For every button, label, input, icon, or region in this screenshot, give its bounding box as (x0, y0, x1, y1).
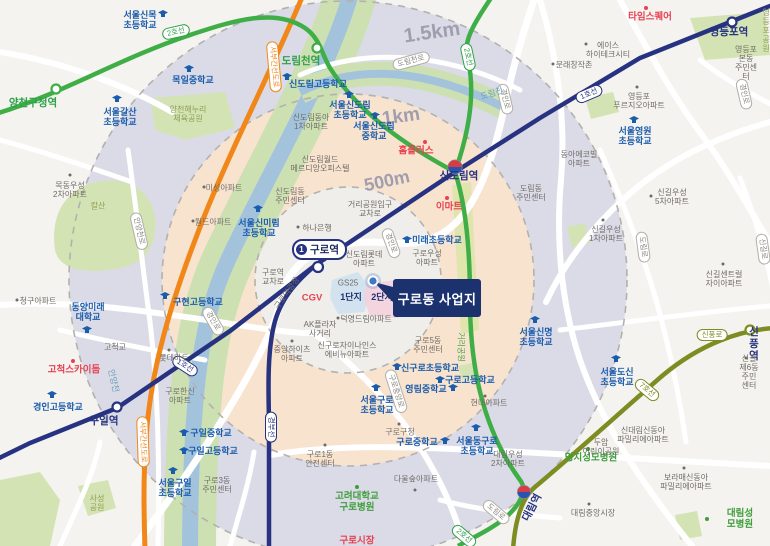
map-label: 신길제6동 주민센터 (739, 354, 760, 390)
gyeongbu-line-badge: 경부선 (265, 412, 277, 443)
map-label: 도림동 주민센터 (516, 184, 545, 202)
road-badge: 도림로 (480, 498, 511, 527)
marker-dot-icon (644, 6, 648, 10)
marker-dot-icon (203, 186, 206, 189)
map-label: 신도림동 주민센터 (275, 187, 304, 205)
station-label-yeongdeungpo: 영등포역 (710, 27, 749, 39)
marker-dot-icon (552, 63, 555, 66)
school-cap-icon (440, 437, 450, 445)
radius-label-1km: 1km (381, 104, 422, 131)
marker-dot-icon (586, 447, 590, 451)
marker-dot-icon (683, 467, 686, 470)
map-label: 경인고등학교 (33, 402, 83, 412)
map-label: 두암 어린이공원 (583, 438, 620, 456)
station-label-sindorim: 신도림역 (440, 171, 479, 183)
map-label: 롯데마트 (159, 353, 188, 362)
school-cap-icon (179, 447, 189, 455)
road-badge: 경인로 (496, 83, 515, 116)
guro-station-badge: 1 구로역 (292, 239, 347, 260)
map-label: 중앙하이츠 아파트 (274, 345, 311, 363)
map-label: 동양미래 대학교 (71, 302, 104, 323)
marker-dot-icon (16, 299, 19, 302)
station-label-guil: 구일역 (90, 416, 119, 428)
marker-dot-icon (71, 359, 75, 363)
map-label: 구로역광장 (273, 275, 302, 310)
marker-dot-icon (355, 485, 359, 489)
map-label: 대림성모병원 (725, 509, 755, 531)
map-label: 고척스카이돔 (48, 366, 100, 377)
marker-dot-icon (192, 220, 195, 223)
map-label: 구로1동 안전센터 (305, 450, 334, 468)
marker-dot-icon (324, 444, 327, 447)
map-label: GS25 (338, 278, 358, 287)
school-cap-icon (530, 316, 540, 324)
road-badge: 구로중앙로 (383, 368, 408, 414)
complex-1-label: 1단지 (340, 292, 362, 302)
road-badge: 경인로 (200, 305, 226, 338)
map-label: 양천해누리 체육공원 (170, 105, 207, 123)
marker-dot-icon (414, 489, 417, 492)
map-label: 거리공원 (456, 332, 465, 361)
school-cap-icon (168, 467, 178, 475)
map-label: 서울영원 초등학교 (618, 126, 651, 147)
map-label: 월드아파트 (195, 217, 232, 226)
map-label: 신길우성 5차아파트 (655, 188, 689, 206)
map-label: 도림천 (479, 86, 504, 102)
line-number-icon: 1 (296, 244, 307, 255)
map-label: 서울신미림 초등학교 (238, 218, 279, 239)
map-label: 구로시장 (340, 537, 375, 546)
line2-badge: 2호선 (449, 522, 478, 546)
line1-badge: 1호선 (170, 353, 200, 378)
school-cap-icon (282, 73, 292, 81)
marker-dot-icon (602, 219, 605, 222)
map-label: 대림중앙시장 (571, 508, 615, 517)
marker-dot-icon (722, 263, 725, 266)
map-label: 구로5동 주민센터 (413, 336, 442, 354)
map-label: 현대아파트 (471, 398, 508, 407)
marker-dot-icon (588, 503, 591, 506)
school-cap-icon (402, 236, 412, 244)
map-label: 신구로초등학교 (401, 363, 459, 373)
school-cap-icon (158, 10, 168, 18)
marker-dot-icon (69, 174, 72, 177)
road-badge: 경인로 (735, 78, 754, 111)
station-label-yangcheongucheong: 양천구청역 (9, 98, 57, 110)
road-badge: 신길로 (755, 233, 770, 265)
map-label: 목일중학교 (172, 75, 213, 85)
label-layer: 1.5km1km500m양천구청역도림천역신도림역영등포역구일역대림역신풍역2호… (0, 0, 770, 546)
map-label: 미성아파트 (206, 183, 243, 192)
map-label: AK플라자 사거리 (304, 320, 337, 338)
map-label: 홈플러스 (399, 147, 434, 158)
map-label: 신도림롯데 아파트 (346, 250, 383, 268)
map-label: 서울신목 초등학교 (123, 10, 156, 31)
road-badge: 도림천로 (391, 50, 430, 71)
map-label: 거리공원입구 교차로 (348, 200, 392, 218)
school-cap-icon (179, 429, 189, 437)
map-label: 안양천 (106, 368, 121, 393)
map-label: 사성 공원 (90, 494, 105, 512)
expressway-badge: 서부간선도로 (136, 416, 150, 468)
school-cap-icon (392, 363, 402, 371)
map-label: 신길센트럴 자이아파트 (706, 270, 743, 288)
map-label: 서울구로 초등학교 (360, 395, 393, 416)
school-cap-icon (82, 326, 92, 334)
road-badge: 경인로 (380, 227, 402, 260)
map-label: 고려대학교 구로병원 (335, 492, 379, 514)
school-cap-icon (611, 355, 621, 363)
marker-dot-icon (650, 195, 653, 198)
marker-dot-icon (168, 349, 171, 352)
marker-dot-icon (484, 395, 487, 398)
map-label: 서울신도림 중학교 (353, 121, 394, 142)
map-label: 타임스퀘어 (628, 13, 672, 24)
marker-dot-icon (705, 517, 709, 521)
marker-dot-icon (291, 340, 294, 343)
map-label: 구로구청 (385, 427, 414, 436)
map-label: 이마트 (436, 203, 462, 214)
map-label: 신길우성 1차아파트 (589, 225, 623, 243)
school-cap-icon (112, 95, 122, 103)
map-label: 서울신도림 초등학교 (329, 100, 370, 121)
map-label: 서울신명 초등학교 (519, 327, 552, 348)
radius-label-500m: 500m (362, 166, 411, 196)
school-cap-icon (435, 376, 445, 384)
map-label: 신도림동아 1차아파트 (293, 113, 330, 131)
road-badge: 도림로 (635, 231, 651, 263)
marker-dot-icon (636, 86, 639, 89)
expressway-badge: 서부간선도로 (266, 41, 282, 93)
marker-dot-icon (398, 423, 401, 426)
map-label: 대림우성 2차아파트 (491, 450, 525, 468)
line7-badge: 7호선 (632, 376, 661, 403)
map-label: 영림중학교 (405, 384, 446, 394)
map-label: 구로3동 주민센터 (202, 476, 231, 494)
map-label: 영등포공원 (762, 8, 769, 54)
map-label: 구로역 교차로 (262, 268, 284, 286)
school-cap-icon (370, 112, 380, 120)
map-label: 구로우성 아파트 (412, 249, 441, 267)
school-cap-icon (253, 205, 263, 213)
map-label: 구일고등학교 (188, 446, 238, 456)
map-label: 다울숲아파트 (394, 474, 438, 483)
map-label: 영등포본동 주민센터 (734, 45, 758, 81)
map-label: 서울동구로 초등학교 (456, 436, 497, 457)
map-label: 명지성모병원 (565, 454, 617, 465)
map-label: 신도림월드 메르디앙오피스텔 (291, 155, 350, 173)
school-cap-icon (184, 65, 194, 73)
map-label: CGV (302, 294, 323, 305)
project-site-label: 구로동 사업지 (393, 279, 481, 317)
marker-dot-icon (445, 196, 449, 200)
map-label: 목동우성 2차아파트 (53, 181, 87, 199)
map-label: 신도림고등학교 (289, 79, 347, 89)
road-badge: 신풍로 (697, 329, 728, 341)
marker-dot-icon (745, 357, 748, 360)
line2-badge: 2호선 (459, 42, 477, 72)
map-label: 고척교 (104, 342, 126, 351)
map-label: 문래창작촌 (556, 60, 593, 69)
school-cap-icon (47, 391, 57, 399)
school-cap-icon (160, 292, 170, 300)
map-label: 서울도신 초등학교 (600, 367, 633, 388)
school-cap-icon (344, 91, 354, 99)
map-label: 신대림신동아 파밀리에아파트 (617, 426, 669, 444)
map-label: 영등포 푸르지오아파트 (613, 92, 665, 110)
map-label: 구현고등학교 (173, 297, 223, 307)
map-label: 덕영드림아파트 (340, 314, 392, 323)
map-label: 구로중학교 (396, 437, 437, 447)
marker-dot-icon (337, 317, 340, 320)
marker-dot-icon (585, 43, 588, 46)
map-label: 하나은행 (302, 223, 331, 232)
map-label: 미래초등학교 (412, 235, 462, 245)
area-map: 1.5km1km500m양천구청역도림천역신도림역영등포역구일역대림역신풍역2호… (0, 0, 770, 546)
road-badge: 안양천로 (129, 211, 149, 250)
map-label: 서울갈산 초등학교 (103, 107, 136, 128)
map-label: 신구로자이나인스 에비뉴아파트 (318, 341, 377, 359)
map-label: 구로고등학교 (445, 375, 495, 385)
map-label: 보라매신동아 파밀리에아파트 (660, 473, 712, 491)
station-label-dorimcheon: 도림천역 (282, 56, 321, 68)
school-cap-icon (629, 116, 639, 124)
map-label: 동아에코빌 아파트 (561, 150, 598, 168)
map-label: 구일중학교 (190, 428, 231, 438)
line1-badge: 1호선 (574, 83, 604, 105)
map-label: 칼산 (91, 201, 106, 210)
map-label: 청구아파트 (20, 296, 57, 305)
map-label: 에이스 하이테크시티 (586, 41, 630, 59)
school-cap-icon (448, 384, 458, 392)
complex-2-label: 2단지 (371, 292, 393, 302)
line2-badge: 2호선 (161, 23, 191, 41)
station-label-daerim: 대림역 (521, 492, 545, 523)
map-label: 서울구일 초등학교 (158, 478, 191, 499)
school-cap-icon (471, 424, 481, 432)
guro-station-name: 구로역 (310, 242, 339, 257)
map-label: 구로한신 아파트 (165, 387, 194, 405)
station-label-sinpung: 신풍역 (746, 327, 762, 363)
school-cap-icon (371, 384, 381, 392)
radius-label-1500m: 1.5km (402, 18, 461, 48)
marker-dot-icon (423, 140, 427, 144)
marker-dot-icon (297, 226, 300, 229)
